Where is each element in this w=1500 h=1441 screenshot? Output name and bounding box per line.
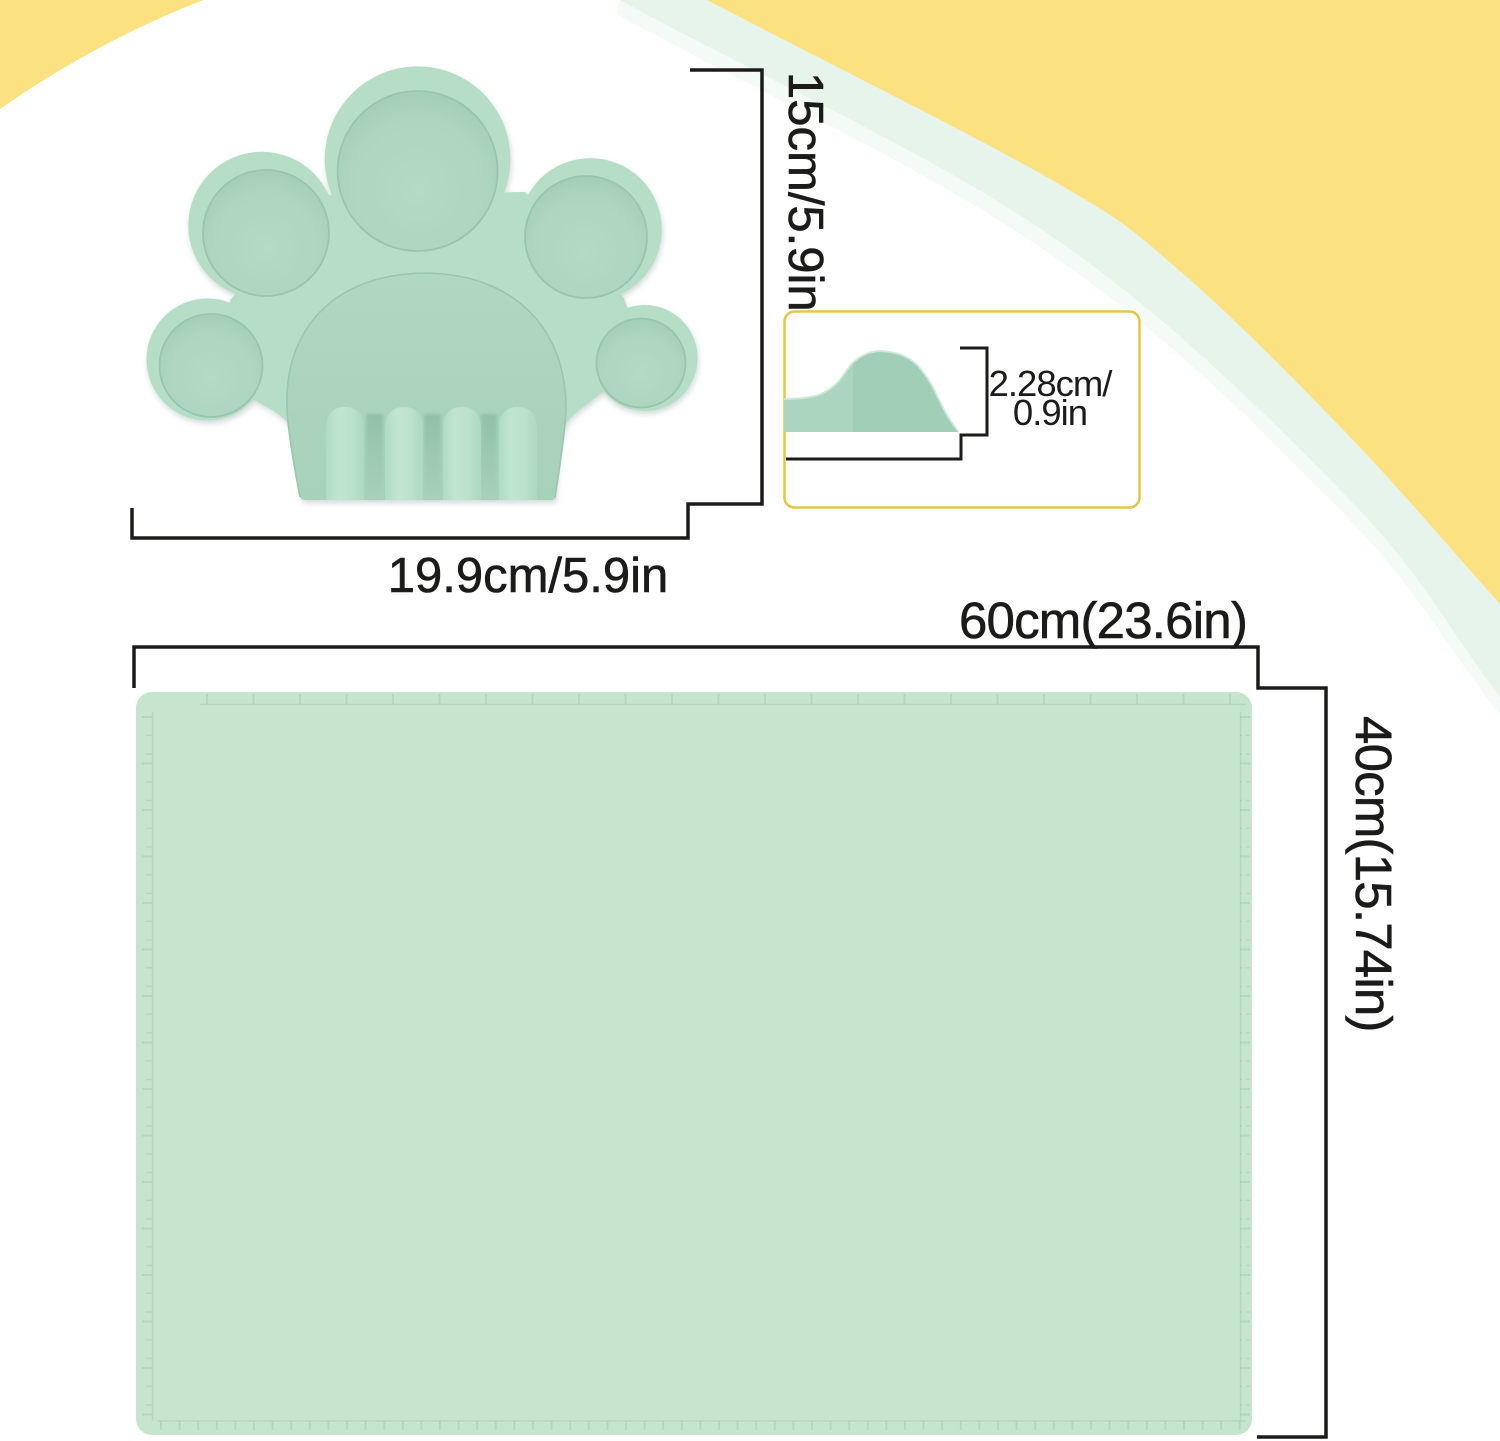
svg-text:15cm/5.9in: 15cm/5.9in — [778, 72, 832, 312]
svg-text:40cm(15.74in): 40cm(15.74in) — [1345, 716, 1402, 1032]
svg-text:60cm(23.6in): 60cm(23.6in) — [959, 592, 1247, 649]
svg-text:19.9cm/5.9in: 19.9cm/5.9in — [388, 549, 669, 603]
svg-text:0.9in: 0.9in — [1013, 392, 1087, 433]
